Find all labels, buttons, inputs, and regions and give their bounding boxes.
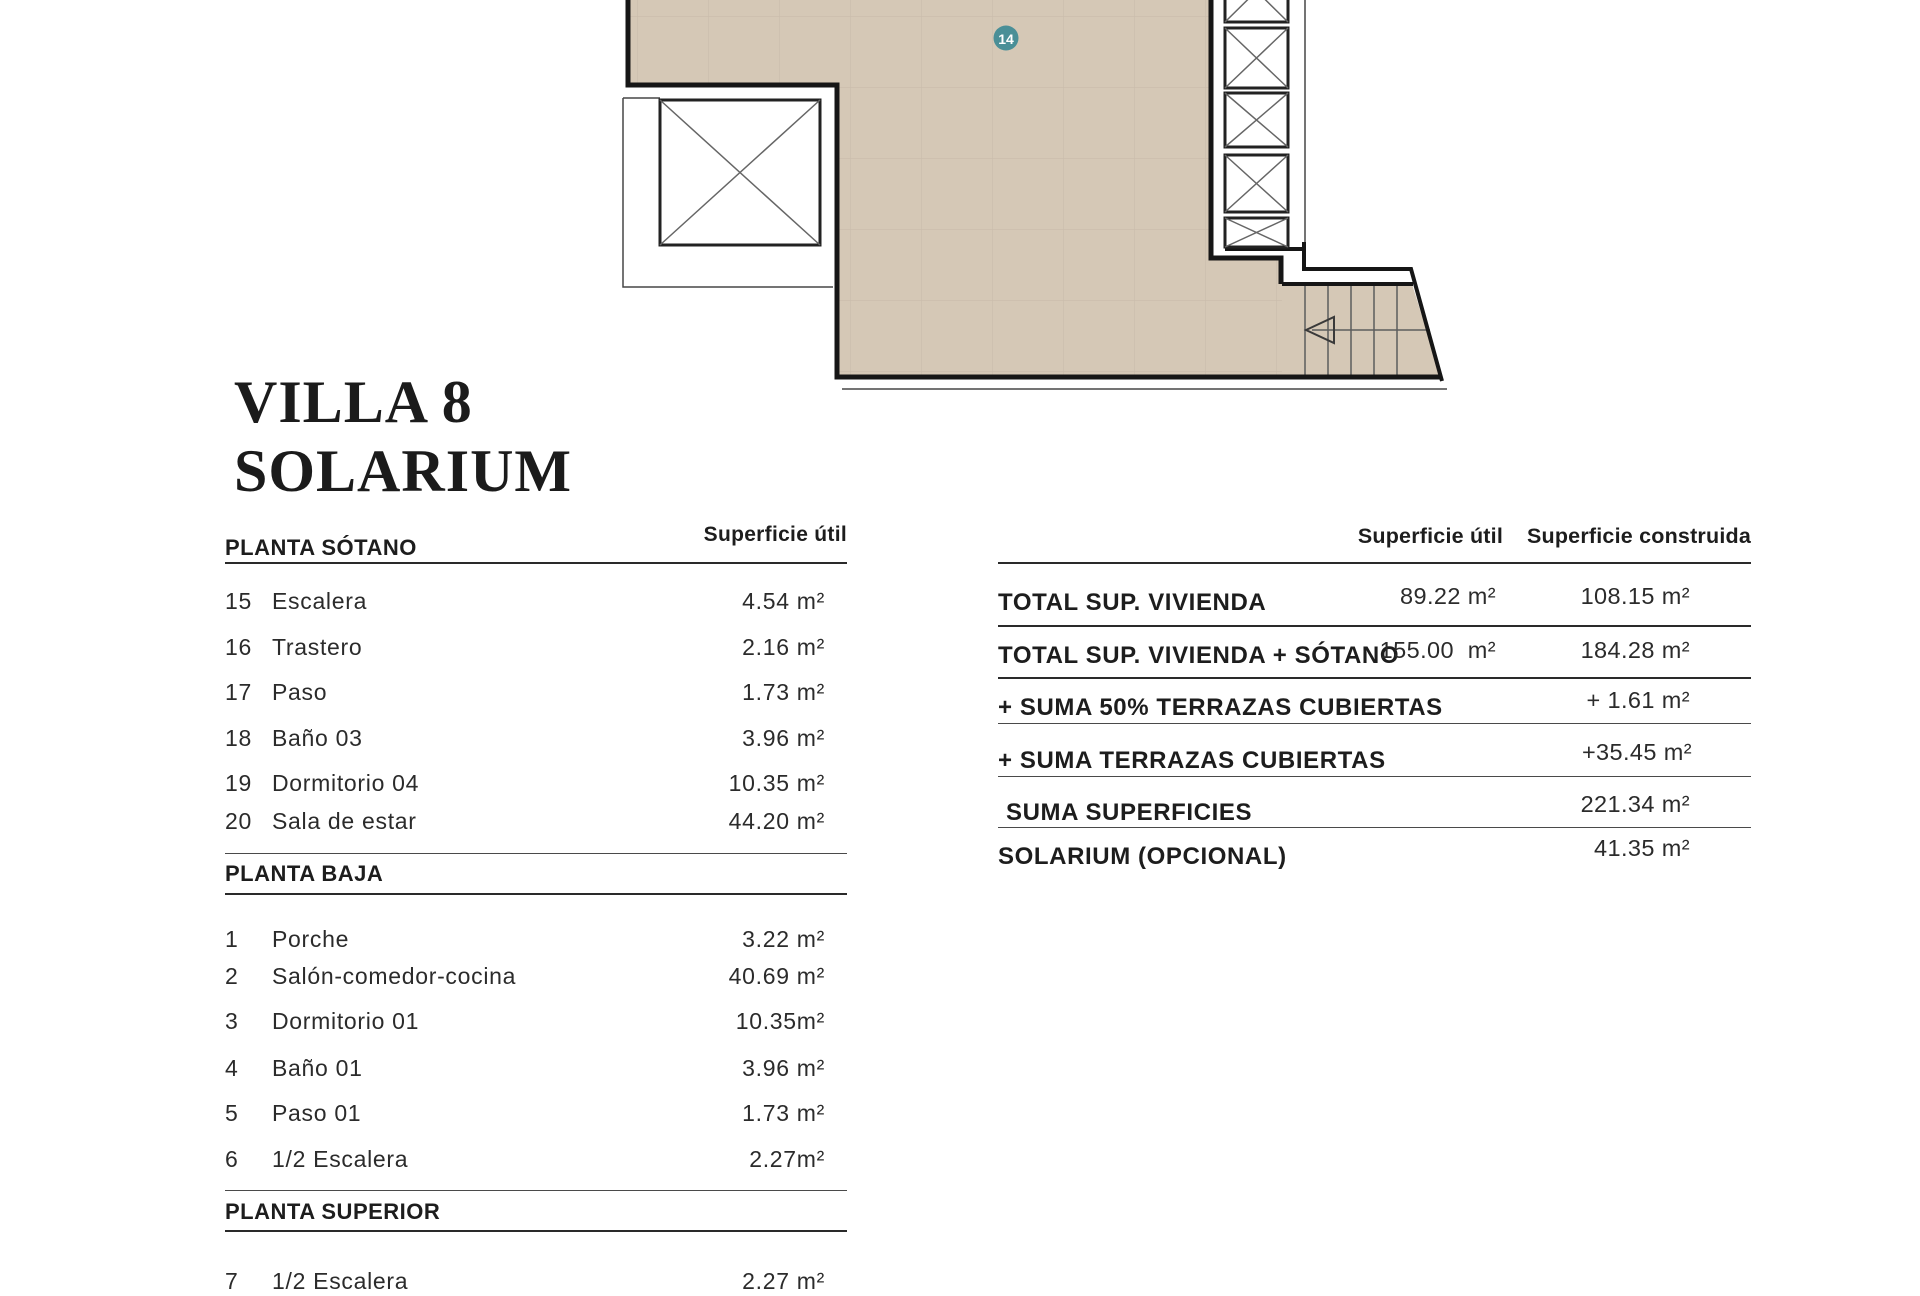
row-number: 20 xyxy=(225,808,252,835)
totals-construida-value: 221.34 m² xyxy=(1581,791,1690,818)
room-area: 4.54 m² xyxy=(742,588,825,615)
room-name: Escalera xyxy=(272,588,367,615)
row-number: 18 xyxy=(225,725,252,752)
row-number: 15 xyxy=(225,588,252,615)
section-title-planta-sotano: PLANTA SÓTANO xyxy=(225,535,417,561)
table-row: 15Escalera4.54 m² xyxy=(225,588,847,616)
pergola-beams xyxy=(1225,0,1288,247)
totals-label: + SUMA 50% TERRAZAS CUBIERTAS xyxy=(998,694,1443,722)
totals-label: TOTAL SUP. VIVIENDA xyxy=(998,589,1266,617)
room-area: 44.20 m² xyxy=(729,808,825,835)
skylight-box xyxy=(660,100,820,245)
divider xyxy=(998,723,1751,724)
room-area: 40.69 m² xyxy=(729,963,825,990)
divider xyxy=(998,562,1751,564)
room-name: Sala de estar xyxy=(272,808,417,835)
divider xyxy=(998,827,1751,828)
row-number: 3 xyxy=(225,1008,239,1035)
room-name: Baño 03 xyxy=(272,725,363,752)
row-number: 4 xyxy=(225,1055,239,1082)
room-area: 2.27m² xyxy=(749,1146,825,1173)
room-marker-label: 14 xyxy=(998,31,1014,47)
room-area: 3.22 m² xyxy=(742,926,825,953)
section-title-planta-baja: PLANTA BAJA xyxy=(225,861,383,887)
room-area: 1.73 m² xyxy=(742,1100,825,1127)
column-header-superficie-construida: Superficie construida xyxy=(1527,524,1751,549)
page-title: VILLA 8 SOLARIUM xyxy=(234,368,754,506)
table-row: 1Porche3.22 m² xyxy=(225,926,847,954)
pergola-beam xyxy=(1225,218,1288,247)
row-number: 5 xyxy=(225,1100,239,1127)
room-area: 3.96 m² xyxy=(742,725,825,752)
row-number: 16 xyxy=(225,634,252,661)
row-number: 2 xyxy=(225,963,239,990)
table-row: 3Dormitorio 0110.35m² xyxy=(225,1008,847,1036)
totals-label: TOTAL SUP. VIVIENDA + SÓTANO xyxy=(998,642,1399,670)
table-row: 4Baño 013.96 m² xyxy=(225,1055,847,1083)
totals-label: SOLARIUM (OPCIONAL) xyxy=(998,843,1287,871)
totals-construida-value: +35.45 m² xyxy=(1582,739,1692,766)
pergola-beam xyxy=(1225,93,1288,147)
table-row: 17Paso1.73 m² xyxy=(225,679,847,707)
room-name: Dormitorio 01 xyxy=(272,1008,419,1035)
totals-construida-value: 41.35 m² xyxy=(1594,835,1690,862)
page: { "title": { "line1": "VILLA 8", "line2"… xyxy=(0,0,1920,1280)
row-number: 17 xyxy=(225,679,252,706)
table-row: 19Dormitorio 0410.35 m² xyxy=(225,770,847,798)
room-marker-14: 14 xyxy=(994,26,1019,51)
divider xyxy=(225,893,847,895)
divider xyxy=(225,1230,847,1232)
room-name: Dormitorio 04 xyxy=(272,770,419,797)
row-number: 19 xyxy=(225,770,252,797)
room-area: 10.35m² xyxy=(736,1008,825,1035)
table-row: 5Paso 011.73 m² xyxy=(225,1100,847,1128)
room-name: Paso xyxy=(272,679,327,706)
pergola-beam xyxy=(1225,28,1288,88)
table-row: 20Sala de estar44.20 m² xyxy=(225,808,847,836)
room-area: 10.35 m² xyxy=(729,770,825,797)
row-number: 6 xyxy=(225,1146,239,1173)
solarium-floor-plan: 14 xyxy=(600,0,1500,400)
totals-table: Superficie útil Superficie construida TO… xyxy=(998,515,1751,880)
totals-construida-value: + 1.61 m² xyxy=(1586,687,1690,714)
divider xyxy=(998,677,1751,679)
room-surface-table: PLANTA SÓTANO Superficie útil 15Escalera… xyxy=(225,515,847,1280)
table-row: 71/2 Escalera2.27 m² xyxy=(225,1268,847,1296)
table-row: 16Trastero2.16 m² xyxy=(225,634,847,662)
room-name: Porche xyxy=(272,926,349,953)
room-area: 3.96 m² xyxy=(742,1055,825,1082)
page-title-line2: SOLARIUM xyxy=(234,437,754,506)
table-row: 18Baño 033.96 m² xyxy=(225,725,847,753)
divider xyxy=(225,1190,847,1191)
room-name: Salón-comedor-cocina xyxy=(272,963,516,990)
room-area: 2.16 m² xyxy=(742,634,825,661)
room-name: 1/2 Escalera xyxy=(272,1268,408,1295)
table-row: 2Salón-comedor-cocina40.69 m² xyxy=(225,963,847,991)
totals-construida-value: 184.28 m² xyxy=(1581,637,1690,664)
page-title-line1: VILLA 8 xyxy=(234,368,754,437)
room-area: 1.73 m² xyxy=(742,679,825,706)
column-header-superficie-util: Superficie útil xyxy=(704,523,847,547)
totals-util-value: 89.22 m² xyxy=(1400,583,1496,610)
totals-label: + SUMA TERRAZAS CUBIERTAS xyxy=(998,747,1386,775)
room-name: Baño 01 xyxy=(272,1055,363,1082)
section-title-planta-superior: PLANTA SUPERIOR xyxy=(225,1199,440,1225)
room-name: 1/2 Escalera xyxy=(272,1146,408,1173)
totals-construida-value: 108.15 m² xyxy=(1581,583,1690,610)
row-number: 7 xyxy=(225,1268,239,1295)
divider xyxy=(998,625,1751,627)
totals-label: SUMA SUPERFICIES xyxy=(1006,799,1252,827)
row-number: 1 xyxy=(225,926,239,953)
room-area: 2.27 m² xyxy=(742,1268,825,1295)
totals-util-value: 155.00 m² xyxy=(1380,637,1496,664)
divider xyxy=(998,776,1751,777)
pergola-beam xyxy=(1225,0,1288,22)
pergola-beam xyxy=(1225,155,1288,212)
divider xyxy=(225,562,847,564)
column-header-superficie-util: Superficie útil xyxy=(1358,524,1503,549)
room-name: Paso 01 xyxy=(272,1100,361,1127)
divider xyxy=(225,853,847,854)
table-row: 61/2 Escalera2.27m² xyxy=(225,1146,847,1174)
room-name: Trastero xyxy=(272,634,362,661)
